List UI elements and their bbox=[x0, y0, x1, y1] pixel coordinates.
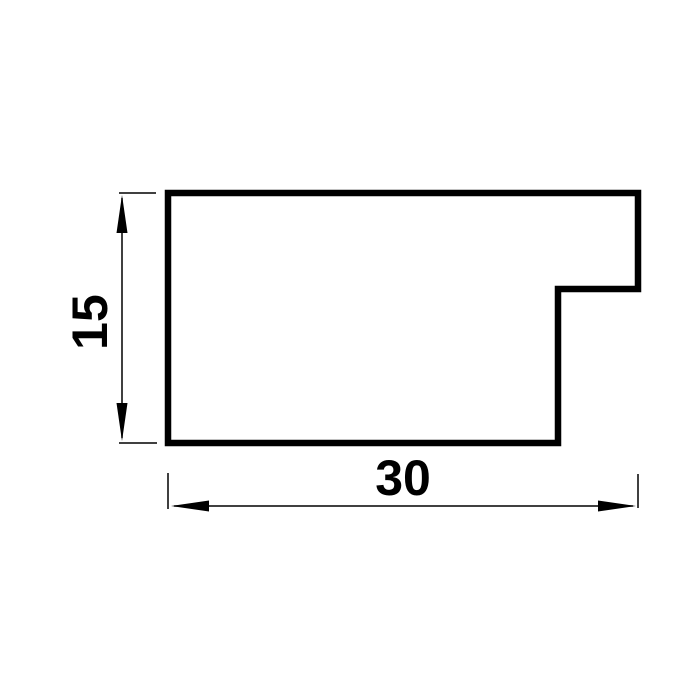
width-dimension: 30 bbox=[168, 450, 638, 512]
arrowhead-up-icon bbox=[117, 195, 128, 233]
drawing-canvas: 15 30 bbox=[0, 0, 700, 700]
arrowhead-right-icon bbox=[598, 501, 636, 512]
width-dimension-label: 30 bbox=[375, 450, 431, 506]
arrowhead-left-icon bbox=[171, 501, 209, 512]
technical-drawing: 15 30 bbox=[0, 0, 700, 700]
arrowhead-down-icon bbox=[117, 403, 128, 441]
profile-outline bbox=[168, 193, 638, 443]
height-dimension-label: 15 bbox=[62, 294, 118, 350]
height-dimension: 15 bbox=[62, 193, 157, 443]
